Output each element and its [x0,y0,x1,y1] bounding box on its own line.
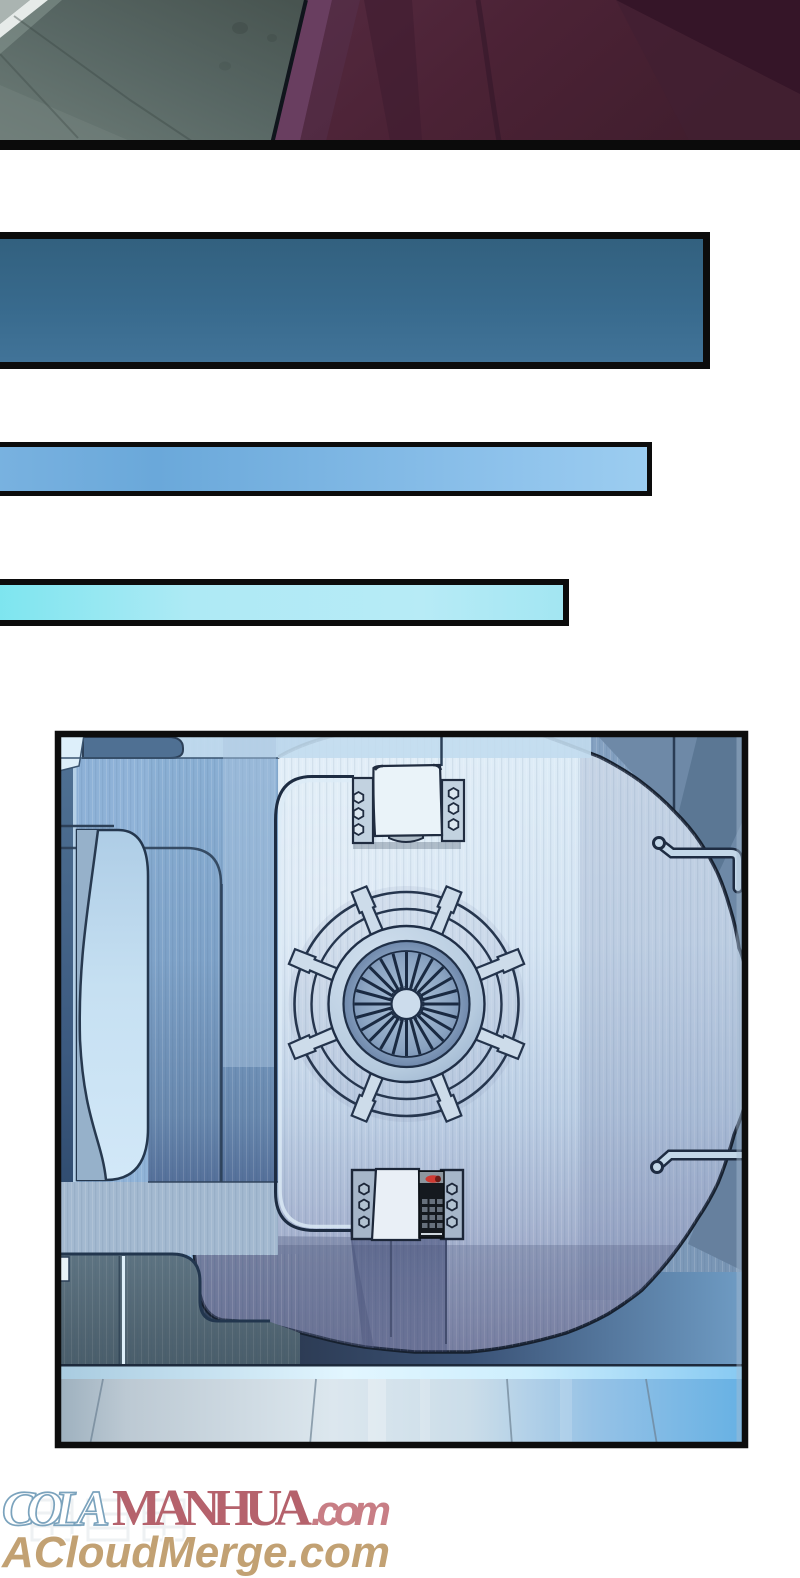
svg-text:ACloudMerge.com: ACloudMerge.com [1,1528,390,1577]
svg-text:.com: .com [311,1487,391,1534]
